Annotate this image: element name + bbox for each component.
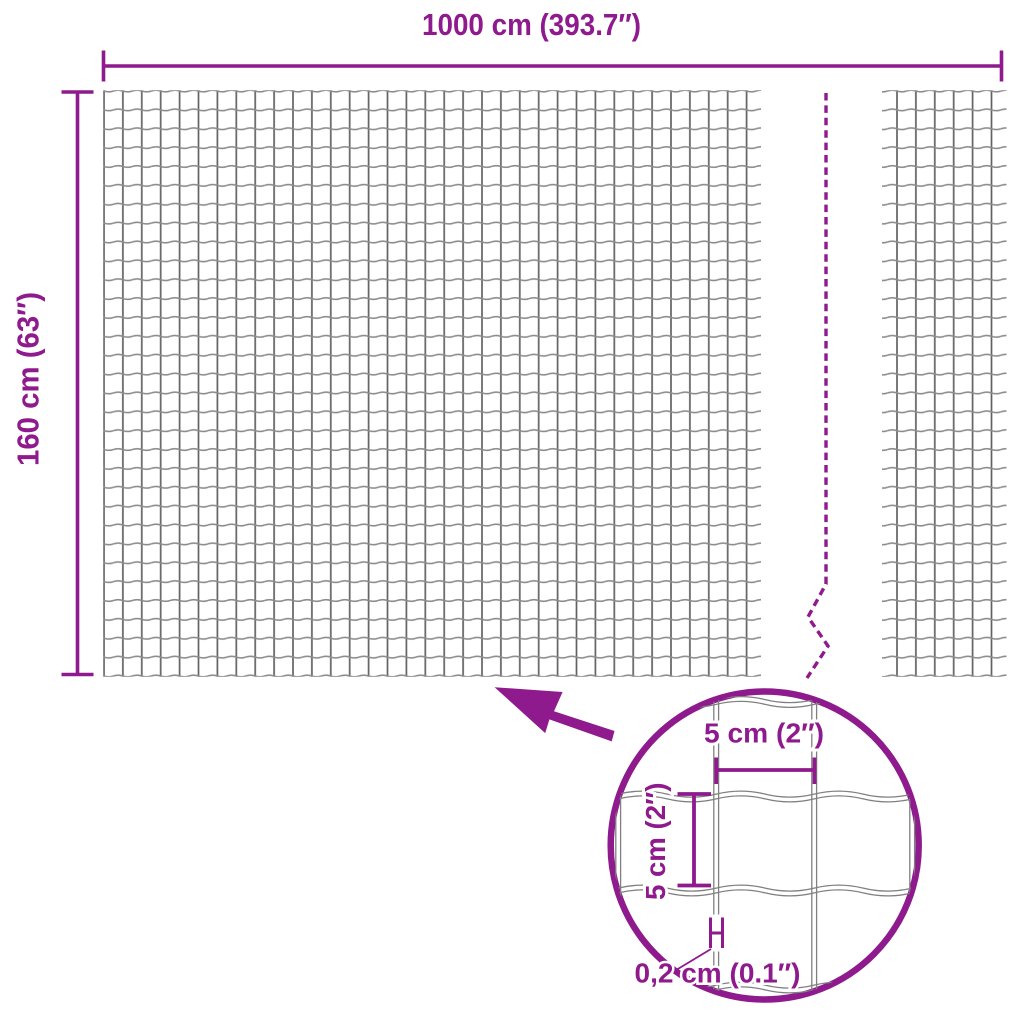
svg-text:1000 cm (393.7″): 1000 cm (393.7″) — [422, 7, 641, 42]
svg-text:160 cm (63″): 160 cm (63″) — [11, 292, 46, 466]
svg-text:5 cm (2″): 5 cm (2″) — [704, 718, 824, 749]
svg-text:5 cm (2″): 5 cm (2″) — [640, 783, 671, 901]
svg-text:0,2 cm (0.1″): 0,2 cm (0.1″) — [635, 958, 801, 989]
